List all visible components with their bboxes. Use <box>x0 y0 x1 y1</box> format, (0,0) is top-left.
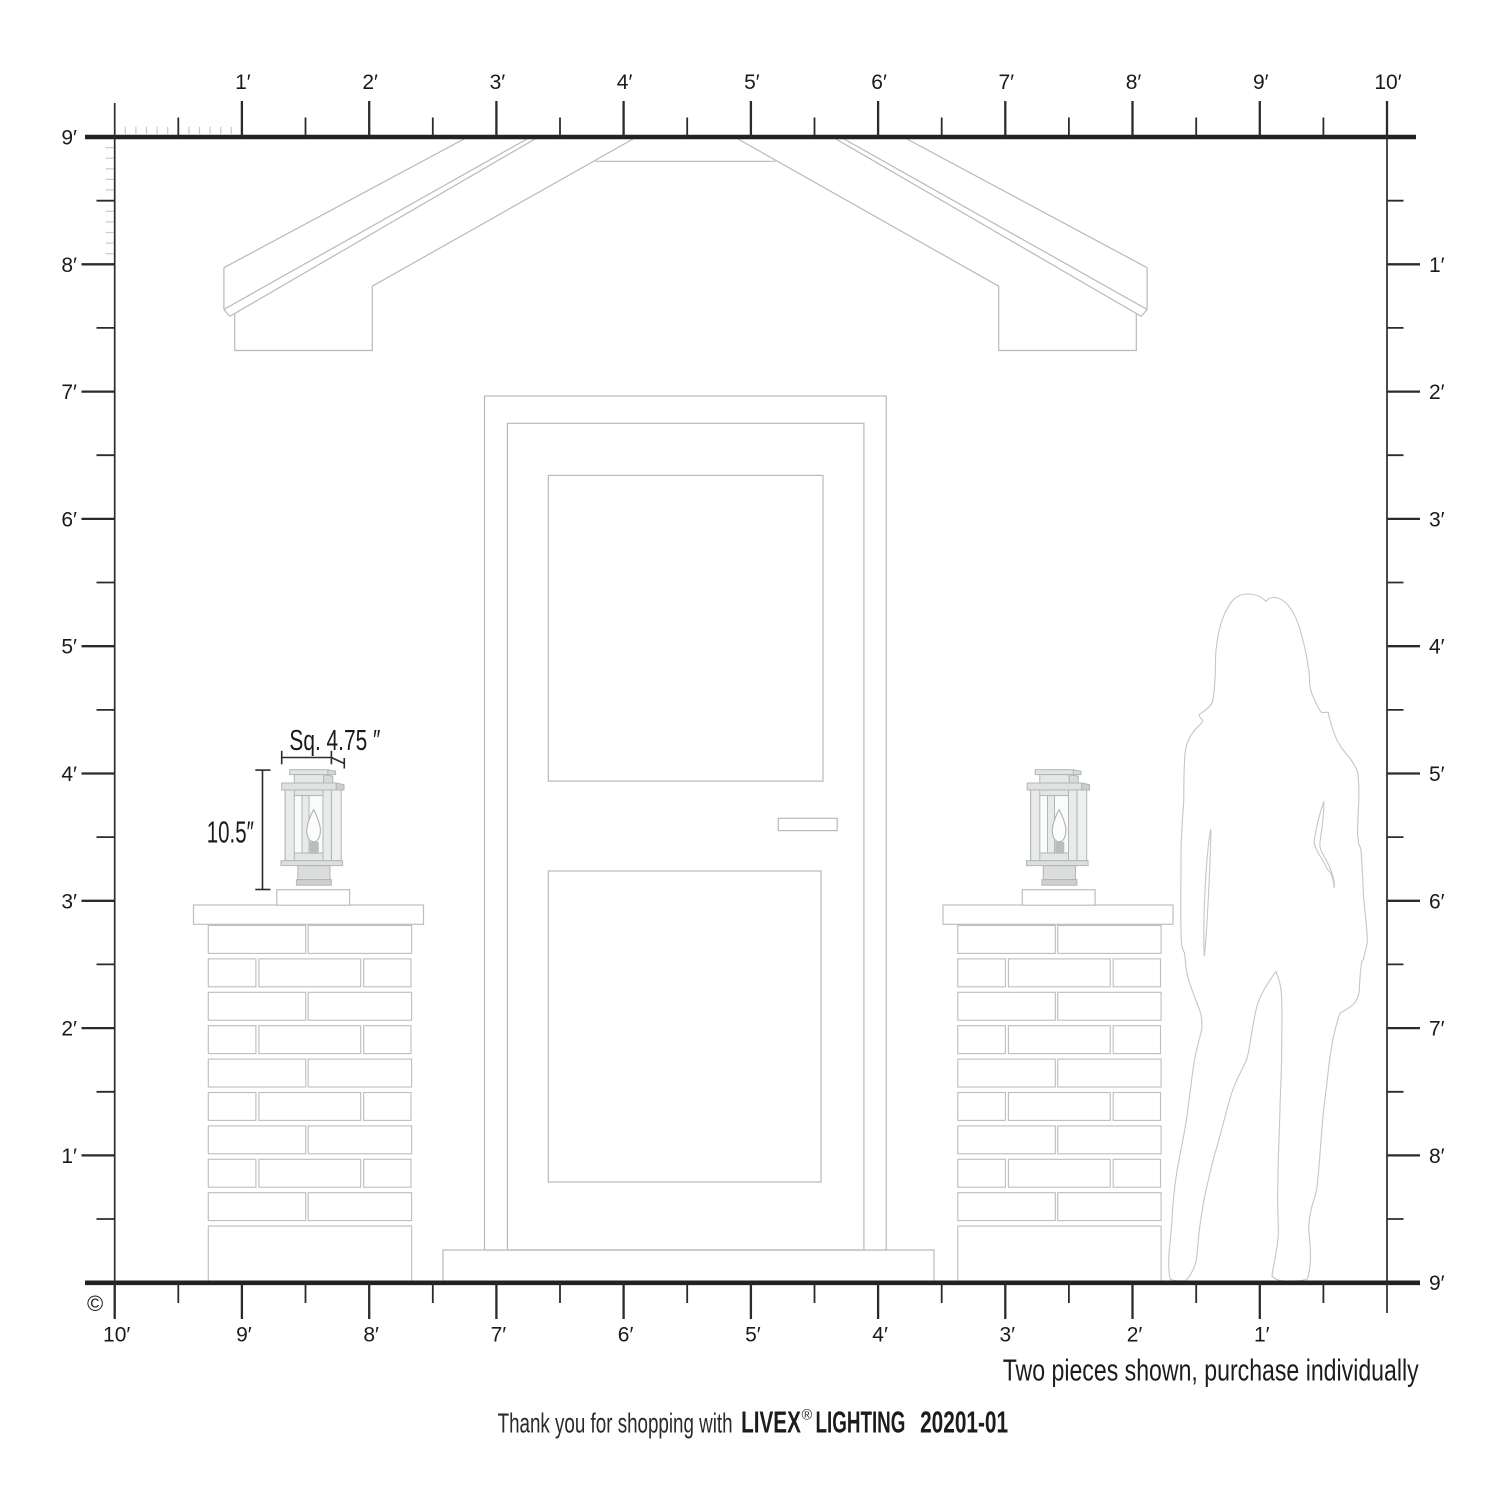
svg-text:2′: 2′ <box>1429 381 1445 404</box>
svg-text:8′: 8′ <box>61 254 77 277</box>
svg-text:6′: 6′ <box>61 508 77 531</box>
svg-text:1′: 1′ <box>1254 1324 1270 1347</box>
svg-text:3′: 3′ <box>999 1324 1015 1347</box>
svg-text:20201-01: 20201-01 <box>920 1405 1008 1440</box>
svg-text:2′: 2′ <box>1127 1324 1143 1347</box>
svg-text:5′: 5′ <box>744 71 760 94</box>
svg-text:4′: 4′ <box>1429 636 1445 659</box>
svg-text:2′: 2′ <box>61 1018 77 1041</box>
svg-text:Two pieces shown, purchase ind: Two pieces shown, purchase individually <box>1003 1352 1419 1387</box>
svg-text:5′: 5′ <box>1429 763 1445 786</box>
svg-text:10′: 10′ <box>1374 71 1401 94</box>
svg-text:1′: 1′ <box>235 71 251 94</box>
svg-text:6′: 6′ <box>618 1324 634 1347</box>
svg-text:3′: 3′ <box>490 71 506 94</box>
svg-text:Sq. 4.75 ″: Sq. 4.75 ″ <box>289 725 380 757</box>
svg-text:9′: 9′ <box>61 127 77 150</box>
svg-text:5′: 5′ <box>745 1324 761 1347</box>
svg-text:7′: 7′ <box>61 381 77 404</box>
svg-text:8′: 8′ <box>1429 1145 1445 1168</box>
svg-text:1′: 1′ <box>61 1145 77 1168</box>
svg-text:4′: 4′ <box>617 71 633 94</box>
svg-text:5′: 5′ <box>61 636 77 659</box>
svg-text:7′: 7′ <box>998 71 1014 94</box>
svg-text:6′: 6′ <box>871 71 887 94</box>
svg-text:7′: 7′ <box>1429 1018 1445 1041</box>
svg-text:9′: 9′ <box>1429 1272 1445 1295</box>
svg-text:4′: 4′ <box>872 1324 888 1347</box>
svg-text:10.5″: 10.5″ <box>207 814 254 849</box>
svg-text:LIVEX: LIVEX <box>741 1405 801 1440</box>
svg-text:8′: 8′ <box>363 1324 379 1347</box>
svg-text:2′: 2′ <box>362 71 378 94</box>
svg-text:7′: 7′ <box>491 1324 507 1347</box>
svg-text:1′: 1′ <box>1429 254 1445 277</box>
svg-text:9′: 9′ <box>236 1324 252 1347</box>
svg-text:LIGHTING: LIGHTING <box>816 1405 906 1440</box>
svg-text:10′: 10′ <box>103 1324 130 1347</box>
svg-text:4′: 4′ <box>61 763 77 786</box>
svg-text:9′: 9′ <box>1253 71 1269 94</box>
svg-text:3′: 3′ <box>1429 508 1445 531</box>
svg-text:6′: 6′ <box>1429 890 1445 913</box>
svg-text:8′: 8′ <box>1126 71 1142 94</box>
svg-text:®: ® <box>802 1407 813 1423</box>
svg-text:3′: 3′ <box>61 890 77 913</box>
svg-text:Thank you for shopping with: Thank you for shopping with <box>498 1408 733 1439</box>
svg-text:©: © <box>87 1291 103 1316</box>
